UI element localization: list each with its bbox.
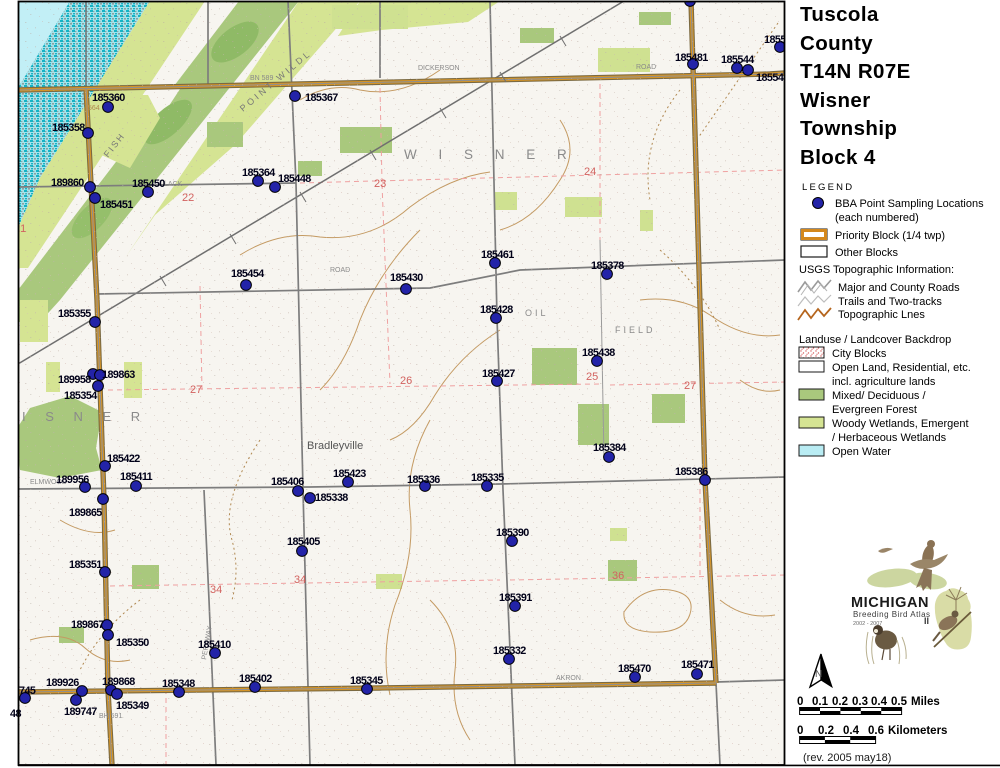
svg-text:II: II (924, 616, 929, 626)
svg-text:County: County (800, 32, 873, 55)
svg-text:185448: 185448 (278, 173, 311, 185)
svg-text:Evergreen Forest: Evergreen Forest (832, 404, 917, 416)
svg-text:185386: 185386 (675, 466, 708, 478)
svg-text:Kilometers: Kilometers (888, 725, 947, 737)
svg-text:Priority Block (1/4 twp): Priority Block (1/4 twp) (835, 230, 945, 242)
svg-text:185410: 185410 (198, 639, 231, 651)
svg-text:(each numbered): (each numbered) (835, 212, 919, 224)
svg-text:189868: 189868 (102, 676, 135, 688)
svg-text:Open Water: Open Water (832, 446, 891, 458)
svg-text:185355: 185355 (58, 308, 91, 320)
svg-text:ROAD: ROAD (636, 64, 656, 71)
svg-text:Woody Wetlands, Emergent: Woody Wetlands, Emergent (832, 418, 969, 430)
svg-text:185471: 185471 (681, 659, 714, 671)
svg-text:DICKERSON: DICKERSON (418, 65, 460, 72)
svg-text:0.2: 0.2 (818, 725, 834, 737)
svg-text:185450: 185450 (132, 178, 165, 190)
svg-text:Trails and Two-tracks: Trails and Two-tracks (838, 296, 942, 308)
svg-text:185427: 185427 (482, 368, 515, 380)
svg-text:Breeding Bird Atlas: Breeding Bird Atlas (853, 610, 931, 619)
svg-text:185391: 185391 (499, 592, 532, 604)
svg-text:USGS Topographic Information:: USGS Topographic Information: (799, 264, 954, 276)
svg-text:185422: 185422 (107, 453, 140, 465)
svg-text:I S N E R: I S N E R (22, 409, 148, 424)
svg-text:OIL: OIL (525, 308, 549, 318)
svg-text:0: 0 (797, 725, 803, 737)
svg-text:185354: 185354 (64, 390, 97, 402)
svg-text:189958: 189958 (58, 374, 91, 386)
svg-text:185544: 185544 (721, 54, 754, 66)
svg-text:N: N (815, 669, 822, 680)
svg-text:ROAD: ROAD (330, 267, 350, 274)
svg-text:185430: 185430 (390, 272, 423, 284)
svg-text:Bradleyville: Bradleyville (307, 440, 363, 452)
svg-text:185367: 185367 (305, 92, 338, 104)
svg-text:LACK: LACK (164, 181, 183, 188)
svg-text:BN 589: BN 589 (250, 75, 273, 82)
svg-text:185350: 185350 (116, 637, 149, 649)
svg-text:36: 36 (612, 570, 624, 582)
svg-text:(rev. 2005 may18): (rev. 2005 may18) (803, 752, 891, 764)
svg-text:185351: 185351 (69, 559, 102, 571)
svg-text:0: 0 (797, 696, 803, 708)
svg-text:City Blocks: City Blocks (832, 348, 887, 360)
svg-text:189867: 189867 (71, 619, 104, 631)
svg-text:26: 26 (400, 375, 412, 387)
svg-text:185438: 185438 (582, 347, 615, 359)
svg-text:48: 48 (10, 708, 21, 720)
svg-text:34: 34 (294, 574, 306, 586)
svg-text:189956: 189956 (56, 474, 89, 486)
svg-text:185402: 185402 (239, 673, 272, 685)
svg-text:MICHIGAN: MICHIGAN (851, 595, 929, 611)
svg-text:21: 21 (14, 223, 26, 235)
svg-text:2002 - 2007: 2002 - 2007 (853, 621, 882, 627)
svg-text:/ Herbaceous Wetlands: / Herbaceous Wetlands (832, 432, 947, 444)
svg-text:25: 25 (586, 371, 598, 383)
svg-text:23: 23 (374, 178, 386, 190)
svg-text:0.5: 0.5 (891, 696, 908, 708)
svg-text:185348: 185348 (162, 678, 195, 690)
svg-text:Miles: Miles (911, 696, 940, 708)
svg-text:0.6: 0.6 (868, 725, 884, 737)
svg-text:745: 745 (19, 685, 36, 697)
svg-text:185378: 185378 (591, 260, 624, 272)
svg-text:AKRON: AKRON (556, 675, 581, 682)
svg-text:Landuse / Landcover Backdrop: Landuse / Landcover Backdrop (799, 334, 951, 346)
svg-text:BBA Point Sampling Locations: BBA Point Sampling Locations (835, 198, 984, 210)
svg-text:189860: 189860 (51, 177, 84, 189)
svg-text:564: 564 (88, 105, 100, 112)
svg-text:185405: 185405 (287, 536, 320, 548)
svg-text:185428: 185428 (480, 304, 513, 316)
svg-text:Wisner: Wisner (800, 89, 871, 112)
svg-text:Other Blocks: Other Blocks (835, 247, 898, 259)
svg-text:Township: Township (800, 117, 897, 140)
svg-text:Open Land, Residential, etc.: Open Land, Residential, etc. (832, 362, 971, 374)
svg-text:18554: 18554 (764, 34, 792, 46)
svg-text:27: 27 (190, 384, 202, 396)
svg-text:185470: 185470 (618, 663, 651, 675)
svg-text:185332: 185332 (493, 645, 526, 657)
svg-text:185406: 185406 (271, 476, 304, 488)
svg-text:BH 591: BH 591 (99, 713, 122, 720)
svg-text:189926: 189926 (46, 677, 79, 689)
svg-text:189747: 189747 (64, 706, 97, 718)
svg-text:Tuscola: Tuscola (800, 3, 879, 26)
svg-text:Block 4: Block 4 (800, 146, 876, 169)
svg-text:22: 22 (182, 192, 194, 204)
svg-text:185345: 185345 (350, 675, 383, 687)
svg-text:185411: 185411 (120, 471, 153, 483)
svg-text:185390: 185390 (496, 527, 529, 539)
svg-text:185384: 185384 (593, 442, 626, 454)
svg-text:LEGEND: LEGEND (802, 182, 854, 193)
svg-text:FIELD: FIELD (615, 325, 656, 335)
svg-text:185360: 185360 (92, 92, 125, 104)
svg-text:185451: 185451 (100, 199, 133, 211)
svg-text:185481: 185481 (675, 52, 708, 64)
svg-text:185349: 185349 (116, 700, 149, 712)
svg-text:W I S N E R: W I S N E R (404, 147, 576, 162)
svg-text:189865: 189865 (69, 507, 102, 519)
svg-text:185364: 185364 (242, 167, 275, 179)
svg-text:0.1: 0.1 (812, 696, 829, 708)
svg-text:185338: 185338 (315, 492, 348, 504)
svg-text:185454: 185454 (231, 268, 264, 280)
svg-text:185461: 185461 (481, 249, 514, 261)
svg-text:Mixed/ Deciduous /: Mixed/ Deciduous / (832, 390, 926, 402)
svg-text:185358: 185358 (52, 122, 85, 134)
svg-text:27: 27 (684, 380, 696, 392)
svg-text:34: 34 (210, 584, 222, 596)
svg-text:0.3: 0.3 (852, 696, 868, 708)
svg-text:T14N R07E: T14N R07E (800, 60, 911, 83)
svg-text:0.2: 0.2 (832, 696, 848, 708)
svg-text:Major and County Roads: Major and County Roads (838, 282, 960, 294)
svg-text:185336: 185336 (407, 474, 440, 486)
svg-text:24: 24 (584, 166, 596, 178)
svg-text:0.4: 0.4 (843, 725, 860, 737)
svg-text:185335: 185335 (471, 472, 504, 484)
svg-text:185423: 185423 (333, 468, 366, 480)
svg-text:incl. agriculture lands: incl. agriculture lands (832, 376, 936, 388)
svg-text:Topographic Lnes: Topographic Lnes (838, 309, 925, 321)
svg-text:189863: 189863 (102, 369, 135, 381)
svg-text:0.4: 0.4 (871, 696, 888, 708)
